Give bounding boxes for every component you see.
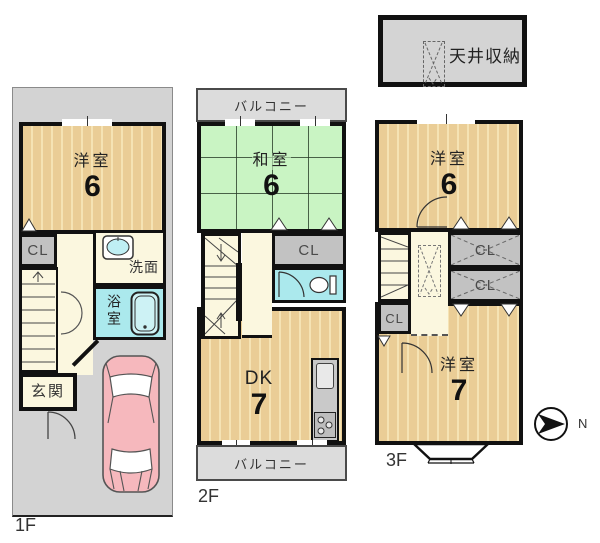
balcony-2f-bottom-label: バルコニー bbox=[234, 454, 309, 473]
balcony-2f-bottom: バルコニー bbox=[196, 445, 347, 481]
entrance-1f: 玄関 bbox=[19, 373, 77, 411]
stove-icon bbox=[314, 412, 336, 438]
attic-ladder-icon bbox=[418, 245, 441, 297]
closet-3f-left-label: CL bbox=[385, 311, 404, 326]
entrance-door-arc bbox=[46, 411, 76, 441]
closet-1f-label: CL bbox=[27, 242, 48, 259]
room-2f-dk7-size: 7 bbox=[251, 389, 268, 421]
washroom-1f: 洗面 bbox=[93, 230, 166, 286]
room-1f-western6: 洋室 6 bbox=[19, 122, 166, 234]
room-2f-dk7-labelbox: DK 7 bbox=[229, 369, 289, 420]
bathroom-1f-label: 浴室 bbox=[104, 294, 124, 328]
room-3f-western7-name: 洋室 bbox=[440, 358, 478, 375]
stairs-3f-treads bbox=[381, 235, 408, 299]
casement-mark-3f-left-down bbox=[377, 335, 391, 347]
closet-3f-right-1: CL bbox=[448, 232, 523, 268]
window-3f-top bbox=[417, 117, 475, 124]
casement-mark-1f bbox=[21, 218, 37, 232]
toilet-door-arc bbox=[277, 271, 305, 299]
kitchen-counter bbox=[311, 358, 339, 442]
balcony-2f-top-label: バルコニー bbox=[234, 96, 309, 115]
floor-label-1f: 1F bbox=[15, 515, 36, 536]
room-1f-western6-size: 6 bbox=[84, 171, 101, 203]
stairs-1f bbox=[19, 267, 58, 373]
bathtub-icon bbox=[130, 291, 160, 336]
toilet-icon bbox=[308, 274, 338, 296]
room-3f-western6-name: 洋室 bbox=[430, 152, 468, 169]
bathroom-1f: 浴室 bbox=[93, 286, 166, 340]
closet-3f-right-1-label: CL bbox=[475, 242, 496, 259]
casement-mark-2f-a bbox=[270, 217, 288, 231]
car-icon bbox=[100, 353, 162, 495]
balcony-2f-top: バルコニー bbox=[196, 88, 347, 122]
casement-mark-2f-b bbox=[320, 217, 338, 231]
door-arc-3f-western7 bbox=[401, 342, 433, 374]
floor-label-3f: 3F bbox=[386, 450, 407, 471]
room-3f-western7-size: 7 bbox=[451, 375, 468, 407]
stairs-2f bbox=[201, 233, 241, 339]
attic-storage-label: 天井収納 bbox=[449, 42, 521, 67]
room-3f-western7-labelbox: 洋室 7 bbox=[429, 358, 489, 406]
closet-2f-label: CL bbox=[298, 242, 319, 259]
closet-3f-left: CL bbox=[378, 302, 411, 334]
entrance-1f-label: 玄関 bbox=[31, 384, 65, 400]
room-2f-tatami6-size: 6 bbox=[263, 170, 280, 202]
washroom-1f-label: 洗面 bbox=[129, 257, 159, 277]
stairs-1f-treads bbox=[22, 270, 55, 370]
toilet-room-2f bbox=[272, 267, 346, 303]
closet-3f-right-2: CL bbox=[448, 268, 523, 302]
window-1f-top bbox=[62, 119, 112, 126]
casement-mark-3f-b bbox=[500, 216, 518, 230]
bay-window-3f bbox=[412, 443, 490, 467]
closet-3f-right-2-label: CL bbox=[475, 277, 496, 294]
room-2f-tatami6-name: 和室 bbox=[252, 153, 290, 170]
attic-storage-box: 天井収納 bbox=[378, 15, 527, 87]
casement-mark-3f-a bbox=[452, 216, 470, 230]
window-2f-top-right bbox=[300, 119, 330, 126]
floor-plan-canvas: 洋室 6 CL 洗面 浴室 bbox=[0, 0, 600, 543]
closet-1f: CL bbox=[19, 234, 57, 267]
north-label: N bbox=[578, 416, 587, 431]
stairs-2f-treads bbox=[205, 236, 238, 336]
hall-3f bbox=[411, 232, 448, 336]
room-1f-western6-name: 洋室 bbox=[73, 154, 111, 171]
room-2f-dk7-name: DK bbox=[245, 369, 273, 389]
casement-mark-3f-down-b bbox=[500, 303, 518, 317]
double-door-1f-icon bbox=[59, 290, 95, 336]
north-arrow-icon bbox=[534, 407, 568, 441]
attic-storage-ladder-icon bbox=[423, 41, 445, 87]
door-arc-3f-western6 bbox=[416, 196, 448, 228]
closet-2f: CL bbox=[272, 233, 346, 267]
floor-label-2f: 2F bbox=[198, 486, 219, 507]
kitchen-sink-icon bbox=[316, 363, 334, 389]
stairs-3f bbox=[378, 232, 411, 302]
casement-mark-3f-down-a bbox=[452, 303, 470, 317]
hall-2f bbox=[242, 233, 272, 338]
window-2f-top-left bbox=[225, 119, 255, 126]
